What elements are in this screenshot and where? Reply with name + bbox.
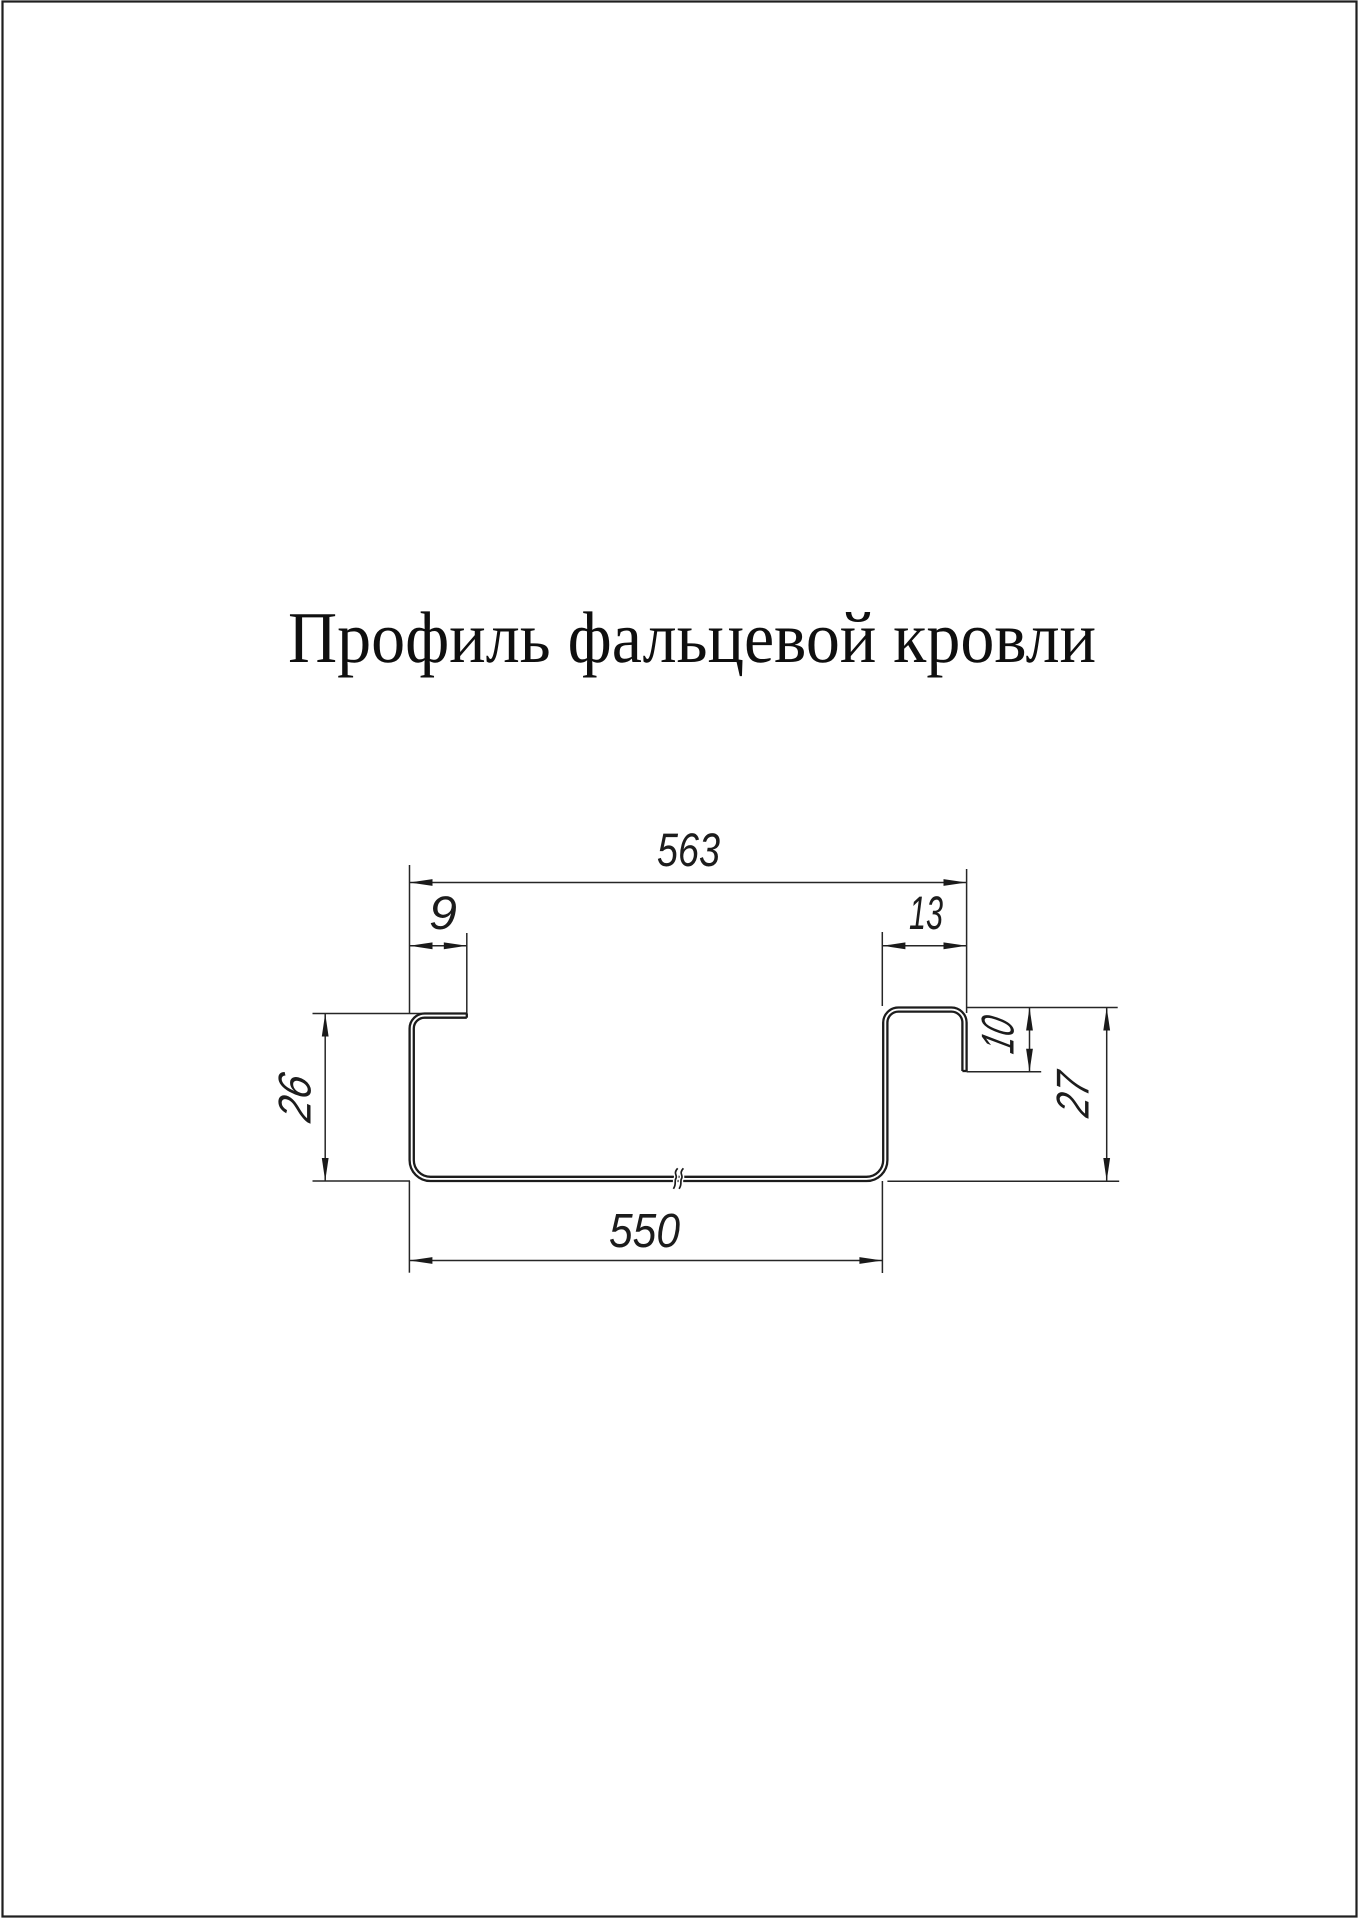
svg-text:Профиль фальцевой кровли: Профиль фальцевой кровли: [288, 597, 1096, 678]
svg-text:13: 13: [909, 886, 943, 939]
svg-text:563: 563: [657, 823, 720, 876]
svg-text:550: 550: [609, 1205, 680, 1258]
svg-text:9: 9: [429, 886, 457, 939]
